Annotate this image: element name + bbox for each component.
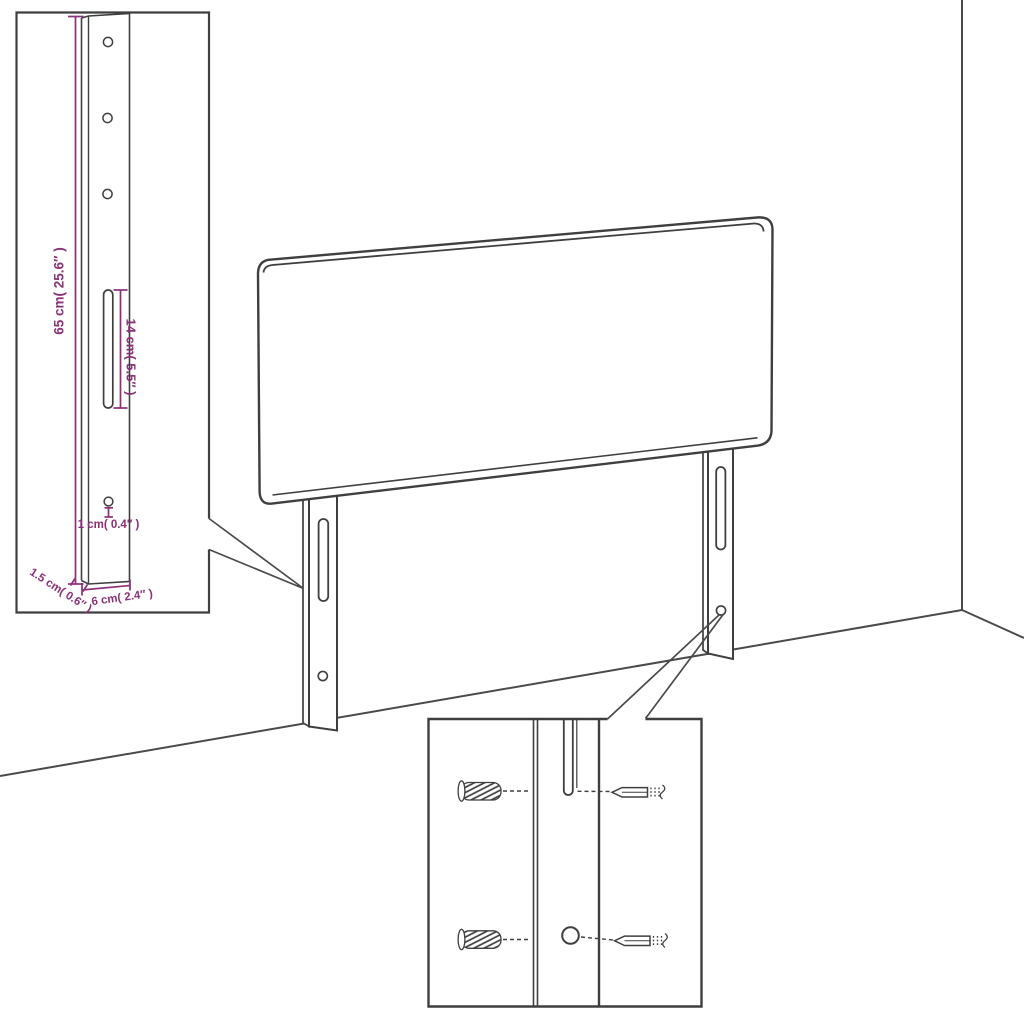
magnified-hole xyxy=(562,927,579,944)
label-hole-size: 1 cm( 0.4″ ) xyxy=(78,519,140,531)
inset-mounting-detail xyxy=(429,719,702,1007)
magnified-slot xyxy=(564,719,573,795)
left-leg xyxy=(303,494,337,731)
dimension-annotations xyxy=(68,17,130,596)
wall-plug-body xyxy=(461,931,501,949)
left-leg-front-face xyxy=(309,494,337,731)
leg-hole-4 xyxy=(104,497,113,506)
floor-wall-line-right xyxy=(962,610,1024,638)
right-leg-hole xyxy=(716,606,725,615)
diagram-page: 65 cm( 25.6″ ) 14 cm( 5.5″ ) 1 cm( 0.4″ … xyxy=(0,0,1024,1024)
inset-box-border xyxy=(429,719,702,1007)
dim-6-line xyxy=(82,586,130,591)
screw-break-squiggle xyxy=(660,785,665,799)
right-leg-front-face xyxy=(708,442,733,659)
label-leg-width: 6 cm( 2.4″ ) xyxy=(91,588,154,609)
magnified-leg xyxy=(534,719,600,1007)
left-leg-hole xyxy=(318,671,327,680)
label-slot-length: 14 cm( 5.5″ ) xyxy=(124,318,139,395)
wall-plug-collar xyxy=(458,781,465,801)
headboard-panel xyxy=(258,217,773,503)
screw-top xyxy=(612,785,665,799)
dashed-line-hole-to-screw-bottom xyxy=(581,937,613,940)
wall-plug-bottom xyxy=(458,929,501,949)
wall-plug-body xyxy=(461,783,501,801)
floor-wall-line-left xyxy=(0,610,962,776)
diagram-canvas: 65 cm( 25.6″ ) 14 cm( 5.5″ ) 1 cm( 0.4″ … xyxy=(0,0,1024,1024)
label-leg-height: 65 cm( 25.6″ ) xyxy=(52,247,67,335)
leg-slot xyxy=(104,290,113,408)
leg-hole-1 xyxy=(103,37,112,46)
wall-plug-collar xyxy=(458,929,465,949)
leg-hole-2 xyxy=(103,113,112,122)
screw-bottom xyxy=(615,934,668,948)
leg-drawing xyxy=(82,14,130,585)
screw-break-squiggle xyxy=(663,934,668,948)
dimension-labels: 65 cm( 25.6″ ) 14 cm( 5.5″ ) 1 cm( 0.4″ … xyxy=(27,247,153,615)
wall-plug-top xyxy=(458,781,501,801)
callout-leader-lines xyxy=(209,519,724,720)
inset-leg-front-view: 65 cm( 25.6″ ) 14 cm( 5.5″ ) 1 cm( 0.4″ … xyxy=(17,13,210,616)
leg-hole-3 xyxy=(103,189,112,198)
leader-lines-left-inset xyxy=(209,519,304,589)
